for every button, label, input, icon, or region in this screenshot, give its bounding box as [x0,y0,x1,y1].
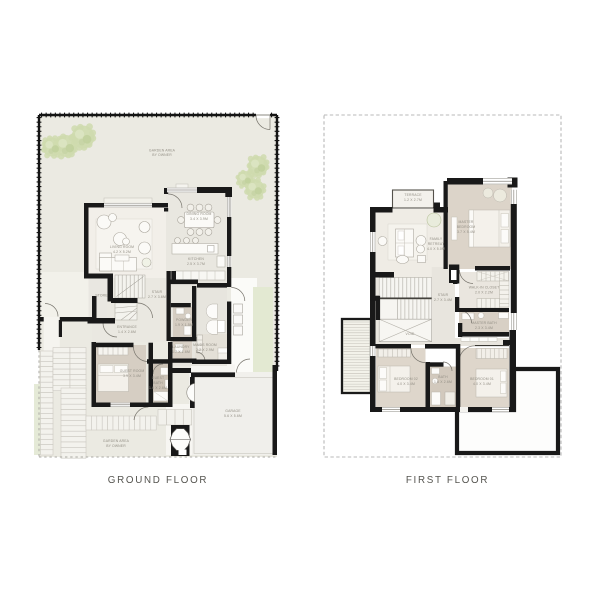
svg-text:BEDROOM 02: BEDROOM 02 [394,377,418,381]
svg-text:GROUND FLOOR: GROUND FLOOR [108,475,208,486]
svg-text:4.0 X 3.4M: 4.0 X 3.4M [473,382,491,386]
svg-text:BATH: BATH [153,381,163,385]
svg-text:LIVING ROOM: LIVING ROOM [110,245,134,249]
svg-text:STAIR: STAIR [152,290,163,294]
svg-text:BEDROOM: BEDROOM [457,225,476,229]
svg-text:RETREAT: RETREAT [428,242,445,246]
svg-text:STAIR: STAIR [438,293,449,297]
svg-text:DINING ROOM: DINING ROOM [186,212,211,216]
svg-text:3.9 X 3.4M: 3.9 X 3.4M [123,374,141,378]
svg-text:GUEST ROOM: GUEST ROOM [120,369,145,373]
svg-text:1.6 X 2.6M: 1.6 X 2.6M [149,386,167,390]
svg-text:2.7 X 3.6M: 2.7 X 3.6M [148,295,166,299]
svg-text:1.7 X 1.6M: 1.7 X 1.6M [172,350,190,354]
svg-text:1.9 X 1.5M: 1.9 X 1.5M [175,323,193,327]
svg-text:1.4 X 2.6M: 1.4 X 2.6M [118,330,136,334]
svg-text:MAIDS ROOM: MAIDS ROOM [193,343,217,347]
svg-text:5.6 X 5.6M: 5.6 X 5.6M [224,414,242,418]
svg-text:VOID: VOID [406,332,415,336]
svg-text:2.5 X 3.7M: 2.5 X 3.7M [187,262,205,266]
svg-text:STORE: STORE [95,294,108,298]
svg-text:LAUNDRY: LAUNDRY [172,345,190,349]
svg-text:3.4 X 3.9M: 3.4 X 3.9M [190,217,208,221]
svg-text:4.2 X 5.2M: 4.2 X 5.2M [113,250,131,254]
svg-text:2.2 X 2.9M: 2.2 X 2.9M [196,348,214,352]
svg-text:GARDEN AREA: GARDEN AREA [149,149,176,153]
svg-text:ENTRANCE: ENTRANCE [117,325,137,329]
svg-text:2.7 X 3.4M: 2.7 X 3.4M [434,298,452,302]
svg-text:BATH: BATH [438,375,448,379]
svg-text:BEDROOM 01: BEDROOM 01 [470,377,494,381]
svg-text:BY OWNER: BY OWNER [152,153,172,157]
svg-text:BY OWNER: BY OWNER [106,444,126,448]
svg-text:4.0 X 5.0M: 4.0 X 5.0M [427,247,445,251]
svg-text:POWDER: POWDER [176,318,193,322]
svg-text:1.2 X 2.7M: 1.2 X 2.7M [404,198,422,202]
svg-text:TERRACE: TERRACE [404,193,422,197]
svg-text:3.7 X 5.4M: 3.7 X 5.4M [457,230,475,234]
svg-text:GUEST: GUEST [152,376,164,380]
svg-text:MASTER BATH: MASTER BATH [471,321,497,325]
svg-text:FIRST FLOOR: FIRST FLOOR [406,475,489,486]
svg-text:WALK-IN CLOSET: WALK-IN CLOSET [469,286,500,290]
svg-text:1.6 X 2.6M: 1.6 X 2.6M [434,380,452,384]
svg-text:2.0 X 2.2M: 2.0 X 2.2M [475,291,493,295]
svg-text:2.3 X 3.4M: 2.3 X 3.4M [475,326,493,330]
svg-text:MASTER: MASTER [458,220,473,224]
svg-text:4.0 X 3.4M: 4.0 X 3.4M [397,382,415,386]
svg-text:KITCHEN: KITCHEN [188,257,204,261]
svg-text:GARAGE: GARAGE [225,409,241,413]
svg-text:GARDEN AREA: GARDEN AREA [103,439,130,443]
svg-text:FAMILY: FAMILY [430,237,443,241]
